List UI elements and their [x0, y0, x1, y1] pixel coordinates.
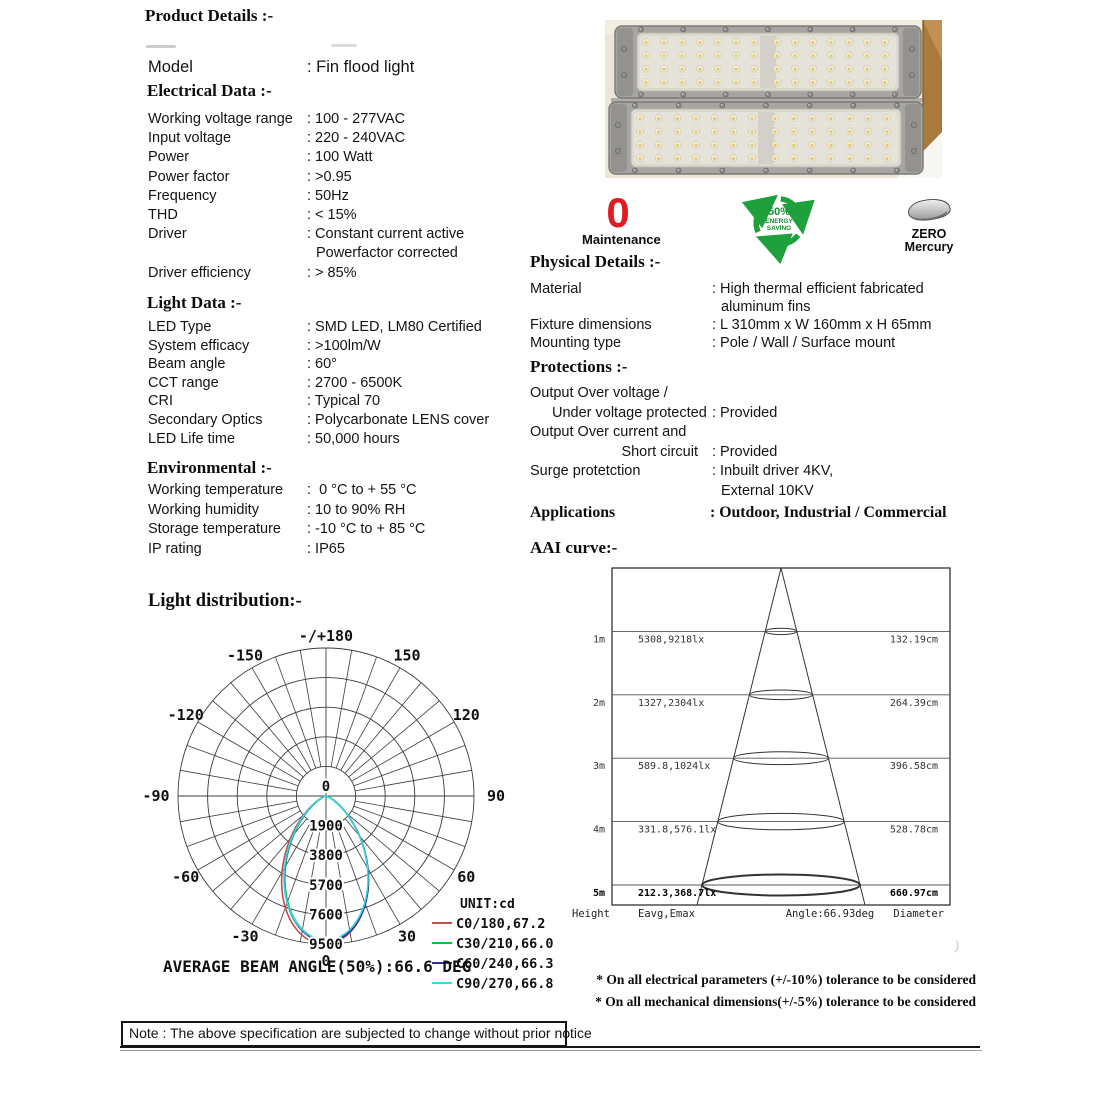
- spec-row: CRI: Typical 70: [148, 392, 568, 411]
- spec-row: Output Over current and: [530, 423, 1000, 443]
- footnote-mechanical-tolerance: * On all mechanical dimensions(+/-5%) to…: [456, 994, 976, 1010]
- spec-row: CCT range: 2700 - 6500K: [148, 374, 568, 393]
- spec-row: Short circuit: Provided: [530, 443, 1000, 463]
- angle-label-120: 120: [453, 706, 480, 724]
- spec-row: Material: High thermal efficient fabrica…: [530, 280, 1000, 298]
- angle-label--/+180: -/+180: [299, 627, 353, 645]
- average-beam-angle-caption: AVERAGE BEAM ANGLE(50%):66.6 DEG: [163, 957, 471, 976]
- grid-spoke: [354, 806, 465, 846]
- angle-label--60: -60: [172, 868, 199, 886]
- spec-value: : > 85%: [307, 264, 357, 283]
- zero-maintenance-label: Maintenance: [582, 232, 654, 247]
- spec-value: : 50,000 hours: [307, 430, 400, 449]
- angle-label--90: -90: [142, 787, 169, 805]
- spec-label: CRI: [148, 392, 307, 411]
- electrical-data-block: Working voltage range: 100 - 277VACInput…: [148, 110, 568, 283]
- spec-label: Working voltage range: [148, 110, 307, 129]
- spec-label: Driver: [148, 225, 307, 244]
- grid-spoke: [300, 650, 321, 767]
- physical-details-block: Material: High thermal efficient fabrica…: [530, 280, 1000, 352]
- spec-value: : >0.95: [307, 168, 352, 187]
- footer-height: Height: [572, 908, 610, 920]
- bottom-rule-shadow: [120, 1050, 982, 1051]
- spec-value: : Fin flood light: [307, 56, 414, 78]
- height-label: 1m: [593, 634, 605, 645]
- angle-label-60: 60: [457, 868, 475, 886]
- spec-label: Mounting type: [530, 334, 712, 352]
- height-label: 3m: [593, 761, 605, 772]
- spec-value: : 0 °C to + 55 °C: [307, 481, 417, 501]
- zero-mercury-line2: Mercury: [900, 241, 958, 254]
- legend-entry: C0/180,67.2: [456, 916, 545, 932]
- spec-label: Under voltage protected: [530, 404, 712, 424]
- spec-value: : SMD LED, LM80 Certified: [307, 318, 482, 337]
- flood-light-module-bottom: [609, 102, 923, 174]
- footnote-electrical-tolerance: * On all electrical parameters (+/-10%) …: [456, 972, 976, 988]
- spec-label: Working humidity: [148, 501, 307, 521]
- angle-label-90: 90: [487, 787, 505, 805]
- spec-row: Secondary Optics: Polycarbonate LENS cov…: [148, 411, 568, 430]
- height-label: 5m: [593, 888, 605, 899]
- grid-spoke: [336, 657, 376, 768]
- spec-value: : 50Hz: [307, 187, 349, 206]
- spec-value: : 220 - 240VAC: [307, 129, 405, 148]
- spec-label: Input voltage: [148, 129, 307, 148]
- energy-saving-line3: SAVING: [746, 225, 812, 232]
- spec-value: : 10 to 90% RH: [307, 501, 405, 521]
- spec-value: : 2700 - 6500K: [307, 374, 402, 393]
- spec-row: LED Life time: 50,000 hours: [148, 430, 568, 449]
- spec-label: CCT range: [148, 374, 307, 393]
- radial-tick-label: 9500: [309, 937, 343, 953]
- grid-spoke: [345, 819, 421, 910]
- spec-label: THD: [148, 206, 307, 225]
- spec-row: Input voltage: 220 - 240VAC: [148, 129, 568, 148]
- erased-text-mark: [146, 45, 176, 48]
- spec-value: : Constant current active: [307, 225, 464, 244]
- spec-label: LED Type: [148, 318, 307, 337]
- grid-spoke: [341, 668, 400, 771]
- spec-label: Material: [530, 280, 712, 298]
- radial-tick-label: 1900: [309, 819, 343, 835]
- spec-label: Model: [148, 56, 307, 78]
- spec-label: Working temperature: [148, 481, 307, 501]
- spec-value: : 100 Watt: [307, 148, 373, 167]
- legend-unit-label: UNIT:cd: [460, 897, 515, 912]
- aai-cone-chart: 1m5308,9218lx132.19cm2m1327,2304lx264.39…: [570, 558, 990, 926]
- spec-row: Mounting type: Pole / Wall / Surface mou…: [530, 334, 1000, 352]
- spec-value: : Provided: [712, 443, 777, 463]
- spec-value: : >100lm/W: [307, 337, 381, 356]
- spec-row: Power factor: >0.95: [148, 168, 568, 187]
- spec-row: Power: 100 Watt: [148, 148, 568, 167]
- spec-value: : 60°: [307, 355, 337, 374]
- spec-value-continuation: Powerfactor corrected: [307, 244, 458, 263]
- spec-label: Fixture dimensions: [530, 316, 712, 334]
- center-zero-label: 0: [322, 779, 330, 795]
- protections-block: Output Over voltage /Under voltage prote…: [530, 384, 1000, 502]
- product-photo: [605, 20, 942, 178]
- light-distribution-heading: Light distribution:-: [148, 591, 302, 612]
- grid-spoke: [231, 683, 307, 774]
- spec-label: Output Over voltage /: [530, 384, 712, 404]
- erased-text-mark: [331, 44, 357, 47]
- applications-label: Applications: [530, 504, 710, 522]
- footer-diameter: Diameter: [893, 908, 944, 920]
- spec-label: Storage temperature: [148, 520, 307, 540]
- eavg-emax-value: 1327,2304lx: [638, 698, 704, 709]
- radial-tick-label: 5700: [309, 878, 343, 894]
- spec-value: : Provided: [712, 404, 777, 424]
- applications-value: : Outdoor, Industrial / Commercial: [710, 504, 947, 522]
- spec-row: Fixture dimensions: L 310mm x W 160mm x …: [530, 316, 1000, 334]
- spec-label: LED Life time: [148, 430, 307, 449]
- spec-row: Working humidity: 10 to 90% RH: [148, 501, 568, 521]
- spec-label: Driver efficiency: [148, 264, 307, 283]
- cone-chart-box: [612, 568, 950, 905]
- spec-value-continuation: aluminum fins: [712, 298, 810, 316]
- spec-label: Frequency: [148, 187, 307, 206]
- spec-label: IP rating: [148, 540, 307, 560]
- grid-spoke: [349, 815, 440, 891]
- eavg-emax-value: 589.8,1024lx: [638, 761, 710, 772]
- radial-tick-label: 7600: [309, 907, 343, 923]
- note-box: Note : The above specification are subje…: [121, 1021, 567, 1047]
- spec-row-continuation: Powerfactor corrected: [148, 244, 568, 263]
- grid-spoke: [252, 668, 311, 771]
- spec-value: : L 310mm x W 160mm x H 65mm: [712, 316, 931, 334]
- stray-mark: ): [954, 938, 960, 953]
- eavg-emax-value: 331.8,576.1lx: [638, 825, 716, 836]
- spec-row: Frequency: 50Hz: [148, 187, 568, 206]
- angle-label--120: -120: [168, 706, 204, 724]
- spec-row: Model: Fin flood light: [148, 56, 568, 78]
- light-data-heading: Light Data :-: [147, 293, 241, 313]
- grid-spoke: [354, 745, 465, 785]
- spec-row: Working temperature: 0 °C to + 55 °C: [148, 481, 568, 501]
- spec-label: Surge protetction: [530, 462, 712, 482]
- footer-eavg-emax: Eavg,Emax: [638, 908, 695, 920]
- environmental-heading: Environmental :-: [147, 458, 272, 478]
- spec-value: : Typical 70: [307, 392, 380, 411]
- diameter-value: 660.97cm: [890, 888, 938, 899]
- energy-saving-percent: 50%: [746, 207, 812, 218]
- grid-spoke: [331, 650, 352, 767]
- spec-row: IP rating: IP65: [148, 540, 568, 560]
- energy-saving-badge: 50% ENERGY SAVING: [746, 194, 812, 250]
- grid-spoke: [355, 801, 472, 822]
- zero-mercury-badge: ZERO Mercury: [900, 197, 958, 254]
- grid-spoke: [213, 701, 304, 777]
- legend-entry: C30/210,66.0: [456, 936, 554, 952]
- spec-label: Short circuit: [530, 443, 712, 463]
- spec-row: Beam angle: 60°: [148, 355, 568, 374]
- radial-tick-label: 3800: [309, 848, 343, 864]
- model-row-block: Model: Fin flood light: [148, 56, 568, 78]
- spec-sheet-page: Product Details :- Electrical Data :- Li…: [0, 0, 1100, 1100]
- spec-label: Beam angle: [148, 355, 307, 374]
- eavg-emax-value: 5308,9218lx: [638, 634, 704, 645]
- angle-label-30: 30: [398, 927, 416, 945]
- grid-spoke: [187, 806, 298, 846]
- spec-label: Output Over current and: [530, 423, 712, 443]
- bottom-rule: [120, 1046, 980, 1048]
- grid-spoke: [275, 657, 315, 768]
- environmental-block: Working temperature: 0 °C to + 55 °CWork…: [148, 481, 568, 559]
- spec-value: : < 15%: [307, 206, 357, 225]
- mercury-drop-icon: [902, 197, 956, 223]
- light-data-block: LED Type: SMD LED, LM80 CertifiedSystem …: [148, 318, 568, 448]
- zero-maintenance-badge: 0 Maintenance: [582, 196, 654, 247]
- spec-row: LED Type: SMD LED, LM80 Certified: [148, 318, 568, 337]
- diameter-value: 264.39cm: [890, 698, 938, 709]
- spec-row: THD: < 15%: [148, 206, 568, 225]
- product-details-heading: Product Details :-: [145, 6, 273, 26]
- grid-spoke: [213, 815, 304, 891]
- cone-right-edge: [781, 568, 865, 905]
- angle-label-150: 150: [393, 647, 420, 665]
- spec-row-continuation: External 10KV: [530, 482, 1000, 502]
- spec-value: : High thermal efficient fabricated: [712, 280, 924, 298]
- flood-light-module-top: [615, 26, 921, 98]
- spec-label: Power: [148, 148, 307, 167]
- spec-row: Driver efficiency: > 85%: [148, 264, 568, 283]
- applications-row: Applications : Outdoor, Industrial / Com…: [530, 504, 947, 522]
- energy-saving-line2: ENERGY: [746, 218, 812, 225]
- spec-label: Secondary Optics: [148, 411, 307, 430]
- cone-left-edge: [697, 568, 781, 905]
- spec-value: : Pole / Wall / Surface mount: [712, 334, 895, 352]
- height-label: 4m: [593, 825, 605, 836]
- grid-spoke: [187, 745, 298, 785]
- grid-spoke: [198, 722, 301, 781]
- zero-maintenance-number: 0: [582, 196, 654, 230]
- spec-row: Surge protetction: Inbuilt driver 4KV,: [530, 462, 1000, 482]
- grid-spoke: [180, 801, 297, 822]
- spec-value: : -10 °C to + 85 °C: [307, 520, 425, 540]
- footer-angle: Angle:66.93deg: [786, 908, 875, 920]
- eavg-emax-value: 212.3,368.7lx: [638, 888, 716, 899]
- grid-spoke: [355, 770, 472, 791]
- grid-spoke: [345, 683, 421, 774]
- diameter-value: 132.19cm: [890, 634, 938, 645]
- spec-label: Power factor: [148, 168, 307, 187]
- spec-value: : Inbuilt driver 4KV,: [712, 462, 833, 482]
- spec-value: : 100 - 277VAC: [307, 110, 405, 129]
- light-distribution-polar-chart: 190038005700760095000-/+180-150150-12012…: [108, 618, 548, 996]
- electrical-data-heading: Electrical Data :-: [147, 81, 272, 101]
- spec-value: : Polycarbonate LENS cover: [307, 411, 489, 430]
- grid-spoke: [352, 722, 455, 781]
- spec-row: Storage temperature: -10 °C to + 85 °C: [148, 520, 568, 540]
- grid-spoke: [180, 770, 297, 791]
- grid-spoke: [349, 701, 440, 777]
- grid-spoke: [341, 822, 400, 925]
- spec-row: System efficacy: >100lm/W: [148, 337, 568, 356]
- diameter-value: 396.58cm: [890, 761, 938, 772]
- spec-row: Output Over voltage /: [530, 384, 1000, 404]
- spec-label: System efficacy: [148, 337, 307, 356]
- spec-row-continuation: aluminum fins: [530, 298, 1000, 316]
- height-label: 2m: [593, 698, 605, 709]
- angle-label--30: -30: [231, 927, 258, 945]
- angle-label--150: -150: [227, 647, 263, 665]
- spec-value-continuation: External 10KV: [712, 482, 814, 502]
- spec-row: Under voltage protected: Provided: [530, 404, 1000, 424]
- diameter-value: 528.78cm: [890, 825, 938, 836]
- spec-row: Working voltage range: 100 - 277VAC: [148, 110, 568, 129]
- spec-value: : IP65: [307, 540, 345, 560]
- spec-row: Driver: Constant current active: [148, 225, 568, 244]
